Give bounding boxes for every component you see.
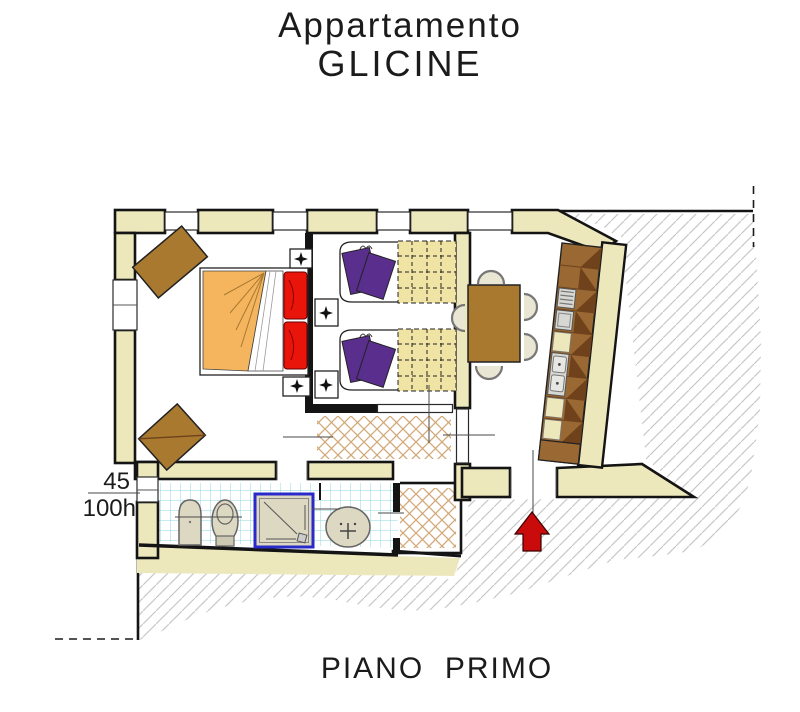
wall-top-1 bbox=[115, 210, 165, 233]
passage-floor bbox=[393, 462, 457, 484]
floor-label: PIANO PRIMO bbox=[321, 652, 553, 686]
door-bedroom1-hallway bbox=[277, 461, 307, 480]
washbasin bbox=[326, 507, 370, 547]
double-bed bbox=[200, 268, 308, 375]
hallway-lattice bbox=[317, 416, 451, 459]
wall-left-1 bbox=[115, 233, 135, 280]
pillow-red-1 bbox=[284, 272, 307, 319]
window-top-2 bbox=[273, 212, 307, 230]
window-bathroom bbox=[137, 477, 158, 502]
door-dining-hallway bbox=[457, 409, 469, 463]
floor-plan-drawing: 45 100h bbox=[0, 0, 800, 712]
wall-bath-left-2 bbox=[137, 502, 158, 558]
floor-plan-page: Appartamento GLICINE bbox=[0, 0, 800, 712]
blanket-2 bbox=[398, 329, 456, 391]
wall-bath-left-1 bbox=[137, 462, 158, 478]
entry-vestibule-lattice bbox=[398, 488, 456, 548]
blanket-1 bbox=[398, 241, 456, 303]
single-bed-2 bbox=[340, 329, 456, 391]
counter-end-block bbox=[538, 440, 580, 464]
window-top-4 bbox=[468, 212, 512, 230]
wall-bath-right-1 bbox=[393, 483, 400, 512]
single-bed-1 bbox=[340, 241, 456, 303]
window-left bbox=[113, 280, 137, 330]
stove-icon bbox=[557, 288, 576, 309]
counter-cell-1 bbox=[552, 332, 571, 353]
bidet bbox=[212, 500, 238, 546]
wall-band-2 bbox=[308, 462, 393, 479]
wall-top-4 bbox=[410, 210, 468, 233]
window-width-label: 45 bbox=[103, 468, 130, 495]
counter-cell-3 bbox=[543, 419, 562, 440]
window-height-label: 100h bbox=[83, 495, 136, 522]
wall-entry-left bbox=[462, 468, 510, 497]
window-top-3 bbox=[377, 212, 410, 230]
shower-tray bbox=[255, 494, 313, 547]
wall-top-3 bbox=[307, 210, 377, 233]
door-bedroom2-hallway bbox=[378, 405, 453, 413]
counter-cell-2 bbox=[545, 397, 564, 418]
wall-bath-right-2 bbox=[393, 538, 400, 553]
wall-top-2 bbox=[198, 210, 273, 233]
wall-left-2 bbox=[115, 330, 135, 463]
wall-bedroom2-bottom bbox=[313, 404, 377, 413]
dining-table bbox=[468, 285, 520, 362]
pillow-red-2 bbox=[284, 322, 307, 369]
oven-icon bbox=[555, 310, 574, 331]
